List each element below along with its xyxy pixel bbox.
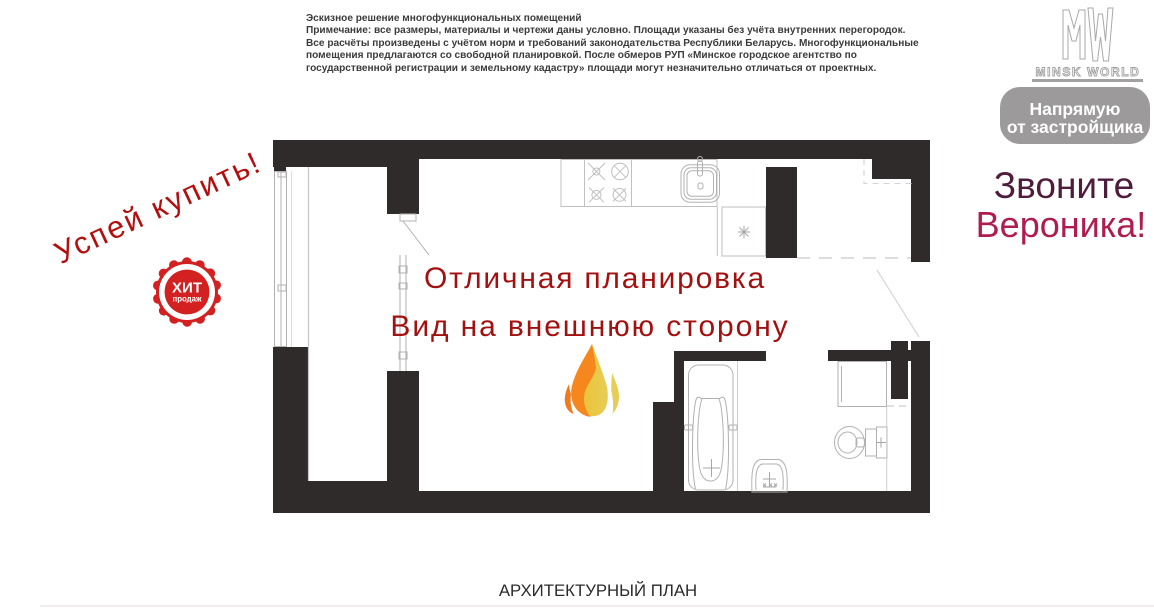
svg-text:продаж: продаж <box>173 295 202 304</box>
